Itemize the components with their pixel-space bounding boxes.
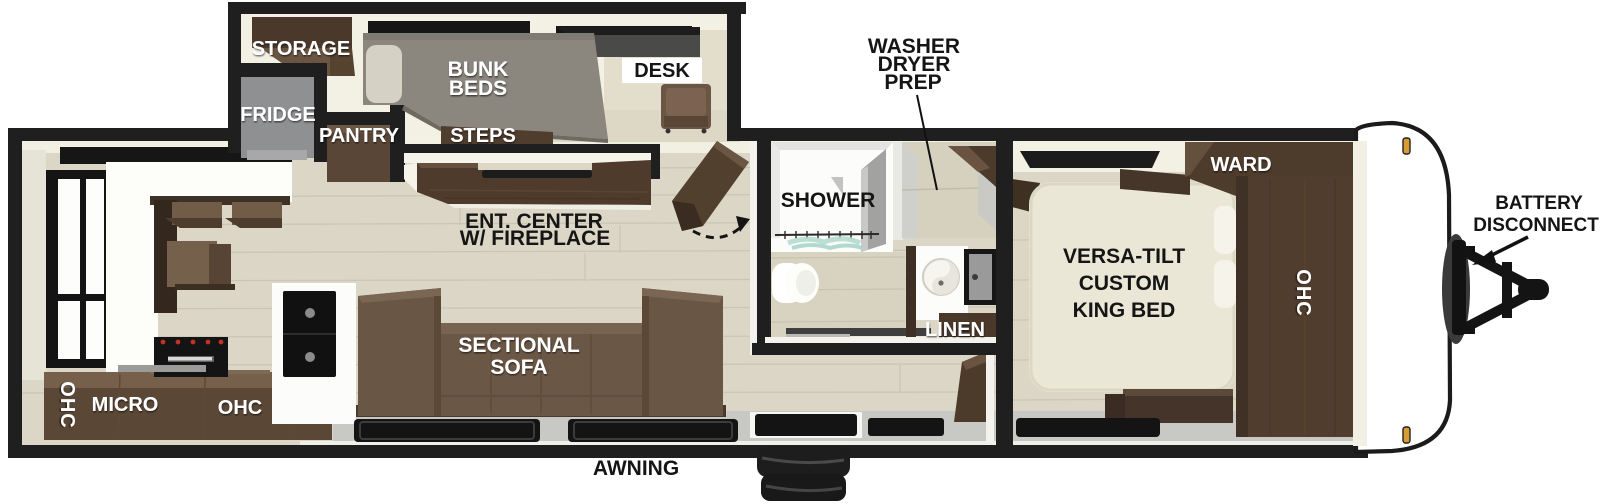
svg-text:PREP: PREP bbox=[884, 71, 941, 94]
svg-text:PANTRY: PANTRY bbox=[319, 125, 400, 147]
svg-text:DESK: DESK bbox=[634, 60, 690, 82]
svg-text:VERSA-TILT: VERSA-TILT bbox=[1063, 245, 1185, 268]
svg-text:BATTERY: BATTERY bbox=[1495, 193, 1583, 214]
svg-text:KING BED: KING BED bbox=[1073, 299, 1176, 322]
svg-text:SECTIONAL: SECTIONAL bbox=[458, 334, 580, 357]
svg-text:OHC: OHC bbox=[218, 397, 262, 419]
svg-text:W/ FIREPLACE: W/ FIREPLACE bbox=[460, 227, 611, 250]
svg-text:CUSTOM: CUSTOM bbox=[1079, 272, 1170, 295]
svg-text:STEPS: STEPS bbox=[450, 125, 516, 147]
svg-text:STORAGE: STORAGE bbox=[252, 38, 351, 60]
svg-text:MICRO: MICRO bbox=[92, 394, 159, 416]
svg-text:LINEN: LINEN bbox=[925, 319, 985, 341]
svg-text:WARD: WARD bbox=[1210, 154, 1271, 176]
svg-text:BEDS: BEDS bbox=[449, 77, 507, 100]
svg-text:OHC: OHC bbox=[56, 381, 78, 428]
svg-text:SOFA: SOFA bbox=[490, 356, 547, 379]
svg-text:FRIDGE: FRIDGE bbox=[240, 104, 316, 126]
svg-text:DISCONNECT: DISCONNECT bbox=[1473, 215, 1599, 236]
svg-text:AWNING: AWNING bbox=[593, 457, 679, 480]
svg-text:OHC: OHC bbox=[1292, 269, 1314, 316]
svg-text:SHOWER: SHOWER bbox=[781, 189, 876, 212]
